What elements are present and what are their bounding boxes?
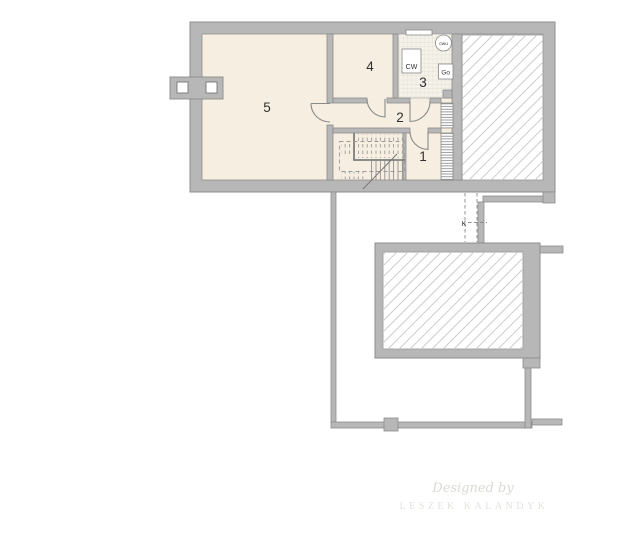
flue-duct: K	[462, 192, 555, 243]
worktop-symbol	[406, 30, 432, 35]
wall-below-building	[483, 196, 543, 202]
wall-corridor-b	[387, 98, 410, 103]
room-1-number: 1	[419, 149, 427, 164]
room-3-number: 3	[419, 75, 427, 90]
room-2-number: 2	[396, 110, 404, 125]
boundary-wall-left	[331, 192, 336, 422]
wall-room5-upper	[327, 34, 333, 103]
protrusion-bottom-right	[532, 419, 562, 425]
boundary-wall-right	[525, 368, 531, 428]
chimney-block	[170, 77, 223, 99]
wall-corridor-a	[333, 98, 367, 103]
protrusion-top-right	[540, 246, 563, 253]
hot-water-tank-label: cwu	[439, 42, 448, 47]
lower-room-wall-extension	[523, 358, 540, 368]
wall-right-extension	[543, 192, 555, 203]
wall-room1-top	[428, 128, 441, 133]
boiler-label: CW	[406, 64, 418, 71]
wall-room5-lower	[327, 125, 333, 180]
flue-label: K	[462, 221, 467, 228]
floor-plan-page: CW cwu Go 5 4 3 2 1 K	[0, 0, 638, 556]
stair-lower-flight	[368, 161, 403, 180]
stair-dashed-ticks-b	[341, 172, 365, 179]
wall-section-strips	[441, 103, 453, 180]
wall-corridor-c	[430, 98, 441, 103]
post	[384, 418, 398, 431]
watermark-script-line: Designed by	[431, 481, 514, 496]
wall-stair-top	[333, 128, 410, 133]
room-4-number: 4	[366, 59, 374, 74]
flue-opening-1	[177, 82, 188, 93]
wall-room3-notch	[443, 90, 452, 98]
watermark: Designed by LESZEK KALANDYK	[400, 481, 549, 512]
flue-opening-2	[206, 82, 217, 93]
watermark-name-line: LESZEK KALANDYK	[400, 501, 549, 512]
floor-plan-drawing: CW cwu Go 5 4 3 2 1 K	[0, 0, 638, 556]
stair-dashed-ticks-a	[341, 142, 353, 157]
lower-room-hatched-slab	[383, 252, 523, 349]
gas-meter-label: Go	[441, 70, 450, 77]
main-building: CW cwu Go 5 4 3 2 1	[170, 22, 555, 192]
boundary-wall-bottom	[331, 422, 532, 428]
lower-structure	[331, 192, 563, 431]
room-5-number: 5	[263, 100, 271, 115]
unexcavated-area	[462, 35, 543, 180]
wall-right-section	[452, 34, 462, 180]
wall-room4-room3	[393, 34, 398, 98]
